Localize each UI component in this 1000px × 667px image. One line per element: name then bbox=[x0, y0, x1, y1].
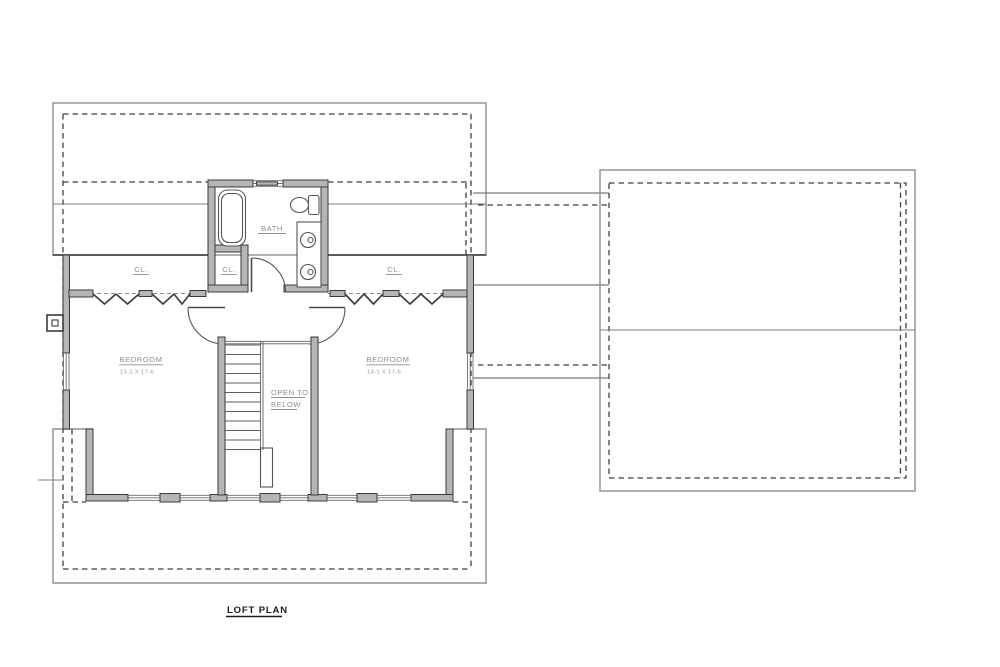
garage-roof bbox=[600, 170, 915, 491]
wall-post-symbol bbox=[47, 315, 63, 331]
stair-treads bbox=[226, 345, 261, 450]
drawing-sheet: BATH CL. CL. CL. bbox=[0, 0, 1000, 667]
breezeway-roof-lines bbox=[473, 193, 609, 378]
bedroom-left-dimension: 13-1 X 17-6 bbox=[120, 370, 154, 376]
open-to-below-label-line1: OPEN TO bbox=[271, 388, 309, 397]
main-house: BATH CL. CL. CL. bbox=[38, 103, 486, 583]
vanity-double-sink-icon bbox=[297, 222, 321, 287]
title-block: LOFT PLAN bbox=[226, 605, 288, 617]
loft-floor-plan-drawing: BATH CL. CL. CL. bbox=[0, 0, 1000, 667]
drawing-title: LOFT PLAN bbox=[227, 605, 288, 616]
bath-window bbox=[253, 181, 283, 187]
left-closet: CL. bbox=[69, 265, 208, 304]
bedroom-right-dimension: 13-1 X 17-6 bbox=[367, 370, 401, 376]
bathtub-icon bbox=[219, 190, 246, 246]
right-closet: CL. bbox=[328, 265, 467, 304]
bath-closet-label: CL. bbox=[222, 265, 235, 274]
left-wall-window bbox=[63, 353, 69, 390]
open-to-below-label-line2: BELOW bbox=[271, 400, 301, 409]
roof-outlines bbox=[38, 103, 486, 583]
toilet-icon bbox=[291, 196, 320, 215]
bathroom: BATH CL. bbox=[208, 180, 328, 292]
bedroom-left-label: BEDROOM bbox=[120, 355, 163, 364]
left-closet-label: CL. bbox=[134, 265, 147, 274]
bottom-wall-windows bbox=[128, 494, 411, 503]
bedroom-doors bbox=[188, 308, 345, 345]
exterior-walls bbox=[63, 255, 474, 501]
bedroom-right-label: BEDROOM bbox=[367, 355, 410, 364]
bath-label: BATH bbox=[261, 224, 283, 233]
stairwell: OPEN TO BELOW bbox=[218, 337, 318, 495]
bedroom-right: BEDROOM 13-1 X 17-6 bbox=[366, 355, 410, 376]
bath-door bbox=[252, 258, 286, 292]
bedroom-left: BEDROOM 13-1 X 17-6 bbox=[119, 355, 163, 376]
right-wall-window bbox=[467, 353, 473, 390]
right-closet-label: CL. bbox=[387, 265, 400, 274]
